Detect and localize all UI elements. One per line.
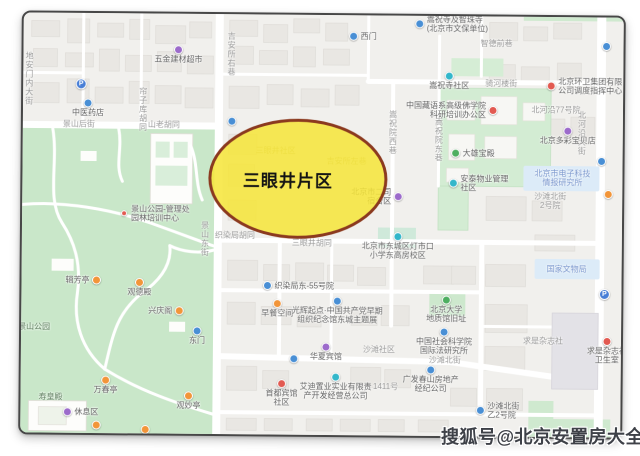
poi-label: 西门 (361, 32, 377, 41)
map-label: 求是杂志社 (523, 336, 563, 346)
poi-label: 广发春山房地产经纪公司 (403, 375, 459, 394)
map-label: 帘子库胡同 (138, 87, 148, 132)
map-label: 北河沿大街 (577, 111, 587, 156)
poi-label: 景山公园-管理处园林培训中心 (131, 204, 190, 223)
map-label: 骑河楼街 (485, 79, 517, 88)
map-label: 1411号 (373, 382, 398, 391)
map-label: 北河沿77号院 (532, 105, 581, 115)
poi-label: 北京多彩宝贝店 (540, 136, 596, 146)
map-canvas: 地安门内大街帘子库胡同景山后街山老胡同吉安所右巷智德前巷骑河楼街北河沿77号院嵩… (20, 12, 624, 437)
watermark: 搜狐号@北京安置房大全 (441, 423, 640, 449)
poi-label: 中国藏语系高级佛学院科研培训办公区 (406, 101, 486, 120)
highlight-label: 三眼井片区 (243, 166, 333, 192)
map-label: 国家文物局 (547, 264, 587, 274)
map-label: 寿皇殿 (38, 392, 62, 401)
map-label: 山老胡同 (148, 120, 180, 129)
poi-label: 安泰物业管理社区 (460, 174, 508, 193)
poi-label: 中医药店 (72, 108, 104, 117)
poi-label: 辑芳亭 (65, 275, 89, 284)
poi-label: 五金建材超市 (154, 55, 202, 65)
poi-label: 光辉起点·中国共产党早期组织纪念馆东城主题展 (292, 306, 383, 325)
poi-label: 首都宾馆社区 (265, 389, 297, 408)
poi-label: 万春亭 (94, 385, 118, 394)
poi-label: 沙滩北街乙2号院 (487, 401, 519, 420)
poi-label: 艾迪置业实业有限责产开发经营总公司 (299, 382, 371, 401)
poi-label: 华夏宾馆 (310, 352, 342, 361)
poi-label: 早餐空间 (261, 308, 293, 317)
poi-label: 北京环卫集团有限公司调度指挥中心 (558, 77, 622, 96)
map-label: 吉安所右巷 (227, 32, 237, 77)
poi-label: 求是杂志社卫生室 (587, 346, 626, 365)
map-label: 景山后街 (63, 119, 95, 128)
map-label: 景山公园 (18, 322, 50, 331)
map-label: 沙滩北街2号院 (534, 192, 566, 211)
map-label: 沙滩北街 (429, 355, 461, 364)
poi-label: 兴庆阁 (148, 306, 172, 315)
poi-label: 观妙亭 (176, 401, 200, 410)
map-label: 沙滩社区 (363, 345, 395, 354)
poi-label: 北京大学地质馆旧址 (426, 305, 466, 324)
map-label: 嵩祝院东巷 (434, 117, 444, 162)
map-label: 嵩祝院西巷 (388, 110, 398, 155)
poi-label: 中国社会科学院国际法研究所 (416, 337, 472, 356)
map-image: 地安门内大街帘子库胡同景山后街山老胡同吉安所右巷智德前巷骑河楼街北河沿77号院嵩… (18, 10, 626, 439)
poi-label: 东门 (189, 336, 205, 345)
map-label: 织染局胡同 (215, 230, 255, 240)
highlight-ellipse: 三眼井片区 (208, 118, 388, 240)
poi-label: 织染局东-55号院 (274, 281, 334, 291)
map-label: 三眼井胡同 (292, 238, 332, 248)
poi-label: 北京市东城区灯市口小学东高房校区 (362, 241, 434, 260)
map-label: 北京市电子科技情报研究所 (534, 169, 590, 188)
poi-label: 大雄宝殿 (463, 149, 495, 158)
article-image: 地安门内大街帘子库胡同景山后街山老胡同吉安所右巷智德前巷骑河楼街北河沿77号院嵩… (0, 0, 640, 456)
map-label: 智德前巷 (481, 39, 513, 48)
map-label: 地安门内大街 (24, 51, 34, 105)
poi-label: 嵩祝寺及智珠寺(北京市文保单位) (427, 15, 488, 34)
poi-label: 嵩祝寺社区 (429, 81, 469, 91)
poi-label: 休息区 (74, 407, 98, 416)
map-label: 景山东街 (200, 221, 210, 257)
poi-label: 观德殿 (127, 287, 151, 296)
